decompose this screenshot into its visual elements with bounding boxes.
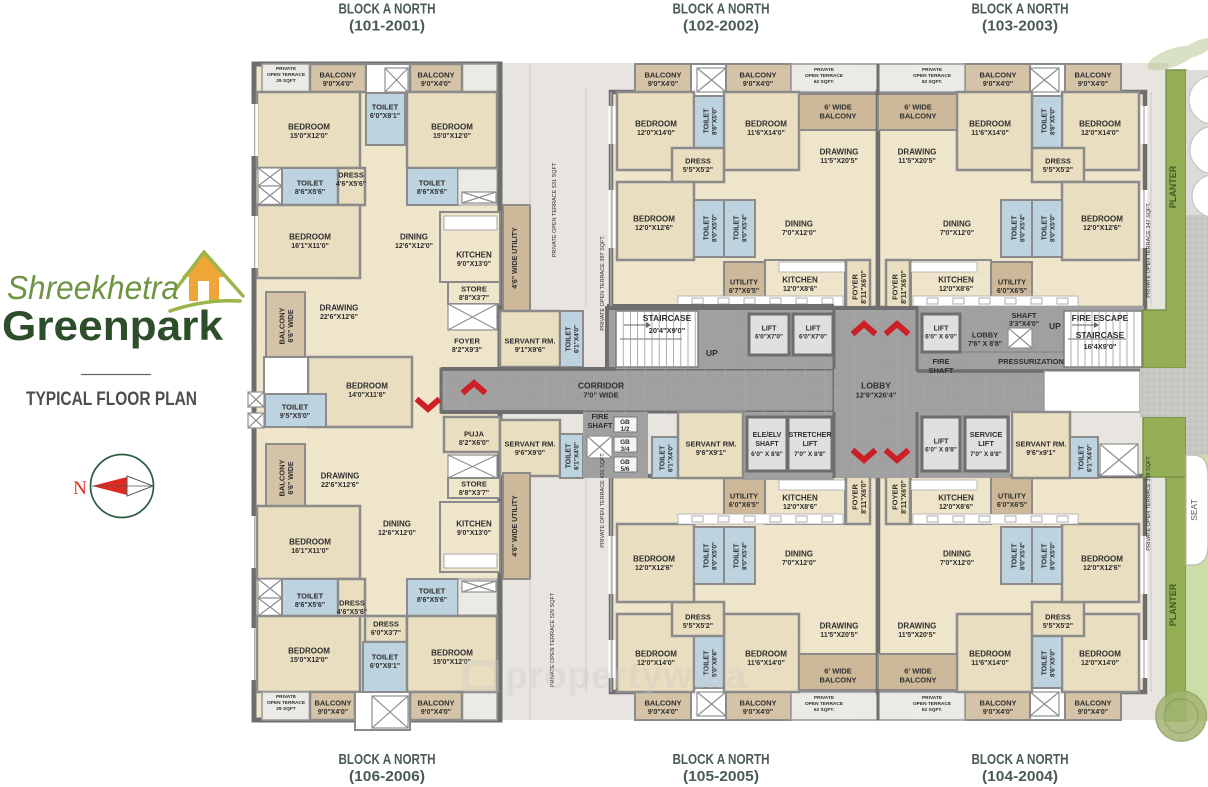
svg-text:BLOCK A NORTH: BLOCK A NORTH: [972, 751, 1069, 768]
svg-text:TYPICAL FLOOR PLAN: TYPICAL FLOOR PLAN: [26, 388, 197, 410]
svg-text:BLOCK A NORTH: BLOCK A NORTH: [339, 751, 436, 768]
svg-text:Shreekhetra: Shreekhetra: [7, 269, 179, 306]
svg-text:(105-2005): (105-2005): [683, 768, 759, 785]
svg-text:(104-2004): (104-2004): [982, 768, 1058, 785]
svg-text:BLOCK A NORTH: BLOCK A NORTH: [339, 1, 436, 18]
svg-text:propertywala: propertywala: [505, 655, 747, 696]
svg-text:PLANTER: PLANTER: [1168, 165, 1178, 208]
svg-text:(102-2002): (102-2002): [683, 18, 759, 35]
svg-text:BLOCK A NORTH: BLOCK A NORTH: [673, 751, 770, 768]
svg-text:PLANTER: PLANTER: [1168, 583, 1178, 626]
svg-text:Greenpark: Greenpark: [2, 302, 224, 349]
svg-text:(101-2001): (101-2001): [349, 18, 425, 35]
svg-text:SEAT: SEAT: [1189, 499, 1199, 521]
svg-text:BLOCK A NORTH: BLOCK A NORTH: [673, 1, 770, 18]
svg-text:N: N: [73, 478, 87, 499]
svg-text:(103-2003): (103-2003): [982, 18, 1058, 35]
svg-text:BLOCK A NORTH: BLOCK A NORTH: [972, 1, 1069, 18]
svg-text:(106-2006): (106-2006): [349, 768, 425, 785]
